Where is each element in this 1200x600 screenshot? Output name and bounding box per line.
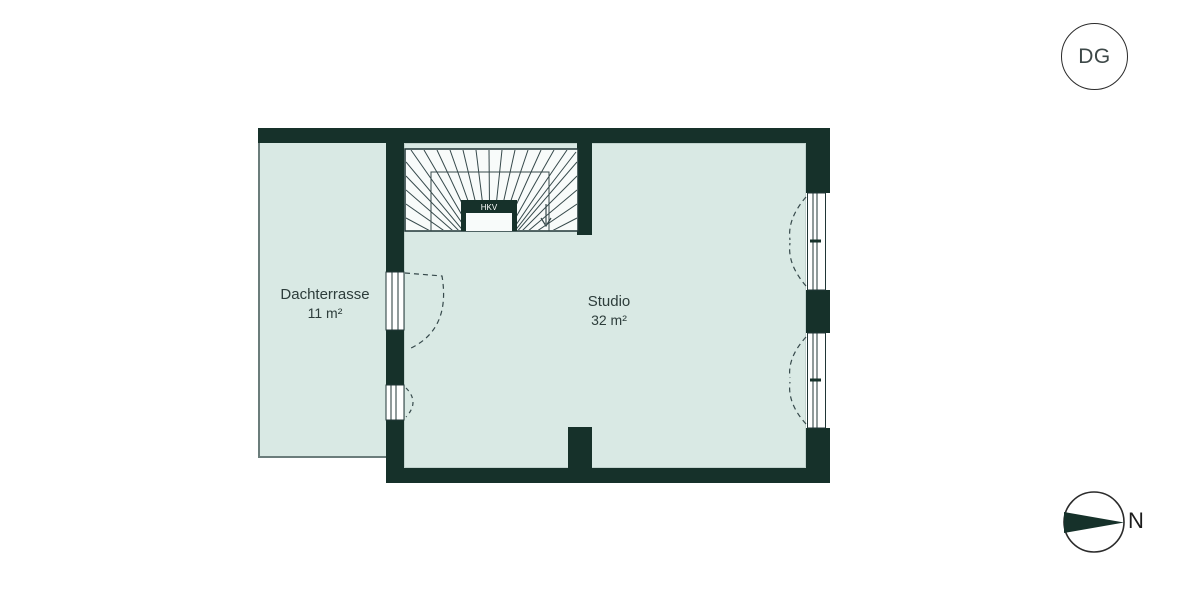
studio-window-upper bbox=[790, 193, 826, 290]
compass-icon bbox=[1064, 492, 1124, 552]
stair-landing bbox=[466, 212, 512, 231]
room-area: 11 m² bbox=[242, 305, 408, 323]
room-name: Dachterrasse bbox=[242, 286, 408, 305]
hkv-label: HKV bbox=[481, 203, 498, 212]
room-area: 32 m² bbox=[529, 312, 689, 330]
floor-plan-canvas: HKV bbox=[0, 0, 1200, 600]
north-label: N bbox=[1128, 508, 1144, 534]
floor-level-badge: DG bbox=[1061, 23, 1128, 90]
staircase: HKV bbox=[405, 149, 578, 263]
room-label-dachterrasse: Dachterrasse 11 m² bbox=[242, 286, 408, 322]
floor-level-label: DG bbox=[1078, 45, 1111, 69]
window-swing-arc bbox=[406, 388, 413, 417]
room-name: Studio bbox=[529, 293, 689, 312]
door-swing-arc bbox=[405, 273, 444, 349]
terrace-window bbox=[386, 385, 413, 420]
studio-window-lower bbox=[790, 333, 826, 428]
room-label-studio: Studio 32 m² bbox=[529, 293, 689, 329]
